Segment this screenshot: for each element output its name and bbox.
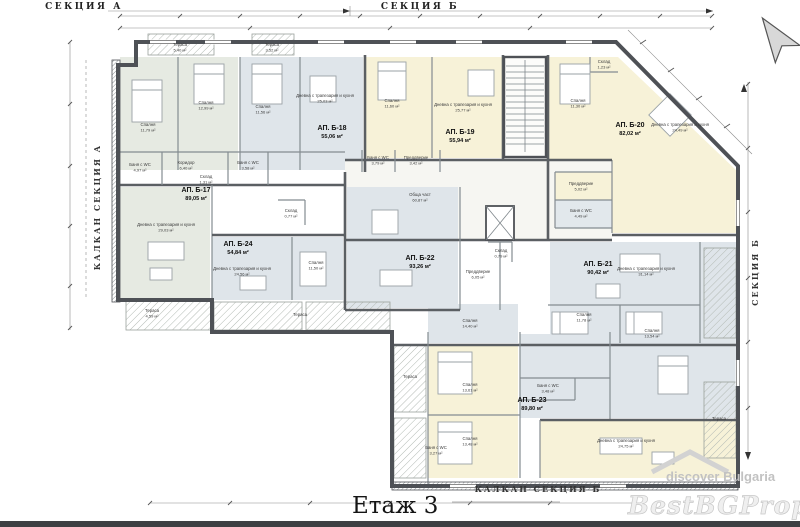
section-b-title: СЕКЦИЯ Б (381, 2, 459, 12)
svg-text:11,60 м²: 11,60 м² (385, 104, 401, 109)
north-arrow-icon (750, 9, 800, 62)
svg-text:24,75 м²: 24,75 м² (618, 444, 634, 449)
svg-text:24,56 м²: 24,56 м² (234, 272, 250, 277)
svg-text:55,06 м²: 55,06 м² (321, 133, 343, 140)
svg-text:АП. Б-19: АП. Б-19 (445, 129, 474, 136)
svg-text:82,02 м²: 82,02 м² (619, 130, 641, 137)
svg-text:3,52 м²: 3,52 м² (266, 48, 280, 53)
svg-text:11,30 м²: 11,30 м² (571, 104, 587, 109)
room-label: Преддверие6,05 м² (466, 269, 491, 280)
svg-text:5,02 м²: 5,02 м² (575, 187, 589, 192)
svg-text:АП. Б-20: АП. Б-20 (615, 122, 644, 129)
svg-text:Спалня: Спалня (462, 318, 478, 323)
svg-text:1,23 м²: 1,23 м² (598, 65, 612, 70)
room-label: Спалня11,56 м² (255, 104, 271, 115)
svg-text:89,80 м²: 89,80 м² (521, 405, 543, 412)
svg-text:14,40 м²: 14,40 м² (462, 324, 478, 329)
floor-plan-drawing: АП. Б-17 89,05 м² АП. Б-18 55,06 м² АП. … (0, 0, 800, 527)
svg-text:АП. Б-24: АП. Б-24 (223, 241, 252, 248)
svg-text:31,14 м²: 31,14 м² (638, 272, 654, 277)
svg-text:Тераса: Тераса (712, 416, 727, 421)
room-label: Спалня13,61 м² (462, 382, 478, 393)
svg-text:3,58 м²: 3,58 м² (242, 166, 256, 171)
svg-text:Обща част: Обща част (409, 192, 431, 197)
svg-text:Склад: Склад (285, 208, 298, 213)
svg-text:Преддверие: Преддверие (466, 269, 491, 274)
svg-text:АП. Б-23: АП. Б-23 (517, 397, 546, 404)
svg-text:Спалня: Спалня (570, 98, 586, 103)
svg-text:90,42 м²: 90,42 м² (587, 269, 609, 276)
right-dim-arrow (745, 452, 751, 460)
svg-text:12,99 м²: 12,99 м² (198, 106, 214, 111)
section-b-side-title: СЕКЦИЯ Б (750, 238, 760, 306)
svg-text:55,94 м²: 55,94 м² (449, 137, 471, 144)
svg-text:11,78 м²: 11,78 м² (577, 318, 593, 323)
room-label: Обща част60,87 м² (409, 192, 431, 203)
svg-text:11,79 м²: 11,79 м² (141, 128, 157, 133)
room-label: Тераса5,40 м² (173, 42, 188, 53)
svg-text:93,26 м²: 93,26 м² (409, 263, 431, 270)
svg-text:Баня с WC: Баня с WC (129, 162, 151, 167)
elevator (486, 206, 514, 240)
svg-text:АП. Б-22: АП. Б-22 (405, 255, 434, 262)
room-label: Склад0,77 м² (285, 208, 299, 219)
svg-text:Спалня: Спалня (384, 98, 400, 103)
svg-text:60,87 м²: 60,87 м² (412, 198, 428, 203)
svg-text:Дневна с трапезария и кухня: Дневна с трапезария и кухня (617, 266, 675, 271)
room-label: Тераса (403, 374, 418, 379)
svg-text:Тераса: Тераса (173, 42, 188, 47)
svg-text:Дневна с трапезария и кухня: Дневна с трапезария и кухня (597, 438, 655, 443)
svg-text:Спалня: Спалня (255, 104, 271, 109)
svg-text:3,42 м²: 3,42 м² (410, 161, 424, 166)
svg-text:Баня с WC: Баня с WC (237, 160, 259, 165)
room-label: Тераса (293, 312, 308, 317)
svg-text:Дневна с трапезария и кухня: Дневна с трапезария и кухня (137, 222, 195, 227)
dimension-ticks-top (118, 14, 714, 30)
svg-text:11,50 м²: 11,50 м² (309, 266, 325, 271)
svg-text:4,59 м²: 4,59 м² (146, 314, 160, 319)
svg-text:Тераса: Тераса (293, 312, 308, 317)
room-label: Склад1,23 м² (598, 59, 612, 70)
room-label: Спалня13,54 м² (644, 328, 660, 339)
svg-text:11,56 м²: 11,56 м² (256, 110, 272, 115)
svg-text:3,27 м²: 3,27 м² (430, 451, 444, 456)
svg-text:3,48 м²: 3,48 м² (542, 389, 556, 394)
svg-text:29,03 м²: 29,03 м² (158, 228, 174, 233)
section-b-arrow (706, 9, 713, 14)
svg-text:4,97 м²: 4,97 м² (134, 168, 148, 173)
kalkan-section-b-title: КАЛКАН СЕКЦИЯ Б (475, 484, 602, 494)
svg-text:Спалня: Спалня (308, 260, 324, 265)
room-label: Тераса (712, 416, 727, 421)
svg-text:Преддверие: Преддверие (569, 181, 594, 186)
svg-text:Баня с WC: Баня с WC (367, 155, 389, 160)
svg-text:0,77 м²: 0,77 м² (285, 214, 299, 219)
room-label: Спалня14,40 м² (462, 318, 478, 329)
svg-text:Спалня: Спалня (644, 328, 660, 333)
svg-text:Спалня: Спалня (462, 382, 478, 387)
svg-text:6,40 м²: 6,40 м² (180, 166, 194, 171)
watermark-bestbgproperties: BestBGProperties (627, 491, 800, 520)
watermark-discover-bulgaria: discover Bulgaria (666, 469, 776, 484)
room-label: Спалня11,79 м² (140, 122, 156, 133)
svg-text:54,84 м²: 54,84 м² (227, 249, 249, 256)
svg-text:Баня с WC: Баня с WC (425, 445, 447, 450)
room-label: Спалня13,48 м² (462, 436, 478, 447)
svg-text:13,61 м²: 13,61 м² (462, 388, 478, 393)
room-label: Склад1,31 м² (200, 174, 214, 185)
svg-text:Тераса: Тераса (265, 42, 280, 47)
section-a-arrow (343, 9, 350, 14)
staircase (504, 57, 546, 157)
room-label: Спалня11,30 м² (570, 98, 586, 109)
svg-text:Склад: Склад (495, 248, 508, 253)
room-label: Тераса3,52 м² (265, 42, 280, 53)
svg-text:25,77 м²: 25,77 м² (455, 108, 471, 113)
svg-text:89,05 м²: 89,05 м² (185, 195, 207, 202)
room-label: Спалня11,78 м² (576, 312, 592, 323)
svg-text:5,40 м²: 5,40 м² (174, 48, 188, 53)
svg-text:24,49 м²: 24,49 м² (672, 128, 688, 133)
svg-text:Дневна с трапезария и кухня: Дневна с трапезария и кухня (434, 102, 492, 107)
room-label: Склад0,79 м² (495, 248, 509, 259)
page-title: Етаж 3 (352, 493, 438, 519)
svg-text:АП. Б-18: АП. Б-18 (317, 125, 346, 132)
svg-text:Спалня: Спалня (576, 312, 592, 317)
svg-text:Дневна с трапезария и кухня: Дневна с трапезария и кухня (296, 93, 354, 98)
room-label: Коридор6,40 м² (178, 160, 196, 171)
sheet-bottom-border (0, 521, 800, 527)
svg-text:Спалня: Спалня (140, 122, 156, 127)
svg-text:Дневна с трапезария и кухня: Дневна с трапезария и кухня (651, 122, 709, 127)
svg-text:1,31 м²: 1,31 м² (200, 180, 214, 185)
section-a-title: СЕКЦИЯ А (45, 2, 123, 12)
svg-text:25,03 м²: 25,03 м² (317, 99, 333, 104)
room-label: Тераса4,59 м² (145, 308, 160, 319)
room-label: Спалня11,60 м² (384, 98, 400, 109)
right-dim-arrow-up (741, 84, 747, 92)
svg-text:Дневна с трапезария и кухня: Дневна с трапезария и кухня (213, 266, 271, 271)
svg-text:Тераса: Тераса (403, 374, 418, 379)
svg-text:Склад: Склад (200, 174, 213, 179)
svg-text:Преддверие: Преддверие (404, 155, 429, 160)
svg-text:13,54 м²: 13,54 м² (644, 334, 660, 339)
room-label: Спалня12,99 м² (198, 100, 214, 111)
svg-text:Спалня: Спалня (462, 436, 478, 441)
svg-text:Склад: Склад (598, 59, 611, 64)
svg-text:3,79 м²: 3,79 м² (372, 161, 386, 166)
svg-text:Баня с WC: Баня с WC (570, 208, 592, 213)
svg-text:Коридор: Коридор (178, 160, 196, 165)
svg-text:Тераса: Тераса (145, 308, 160, 313)
svg-text:АП. Б-21: АП. Б-21 (583, 261, 612, 268)
svg-text:0,79 м²: 0,79 м² (495, 254, 509, 259)
svg-text:4,49 м²: 4,49 м² (575, 214, 589, 219)
kalkan-section-a-title: КАЛКАН СЕКЦИЯ А (92, 144, 102, 270)
room-label: Спалня11,50 м² (308, 260, 324, 271)
svg-text:Баня с WC: Баня с WC (537, 383, 559, 388)
svg-text:АП. Б-17: АП. Б-17 (181, 187, 210, 194)
svg-text:6,05 м²: 6,05 м² (472, 275, 486, 280)
svg-text:13,48 м²: 13,48 м² (462, 442, 478, 447)
floor-plan-sheet: АП. Б-17 89,05 м² АП. Б-18 55,06 м² АП. … (0, 0, 800, 527)
svg-text:Спалня: Спалня (198, 100, 214, 105)
